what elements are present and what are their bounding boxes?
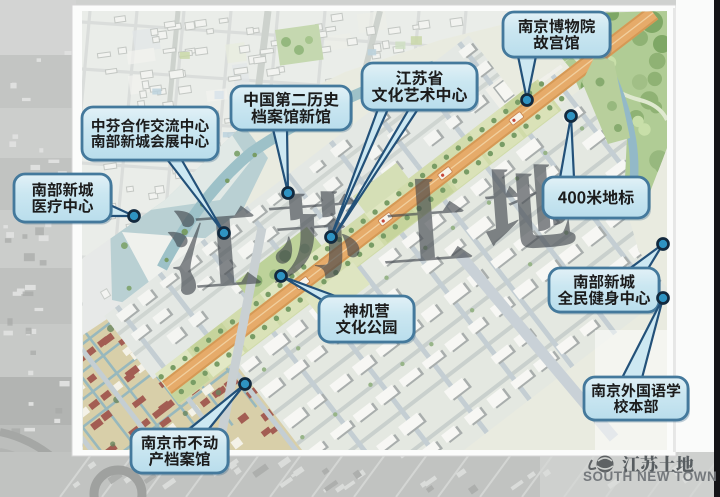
svg-text:SOUTH NEW TOWN: SOUTH NEW TOWN xyxy=(583,469,717,484)
